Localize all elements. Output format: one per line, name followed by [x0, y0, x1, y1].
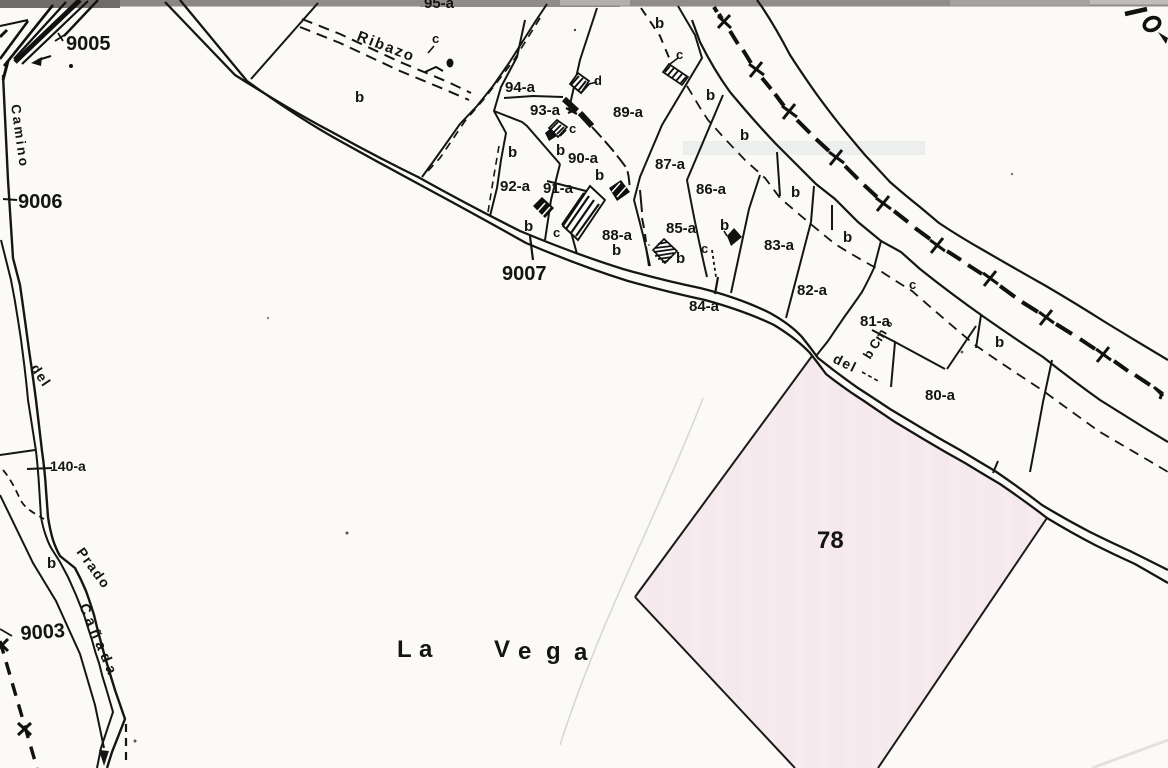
- svg-text:g: g: [546, 638, 561, 665]
- svg-text:95-a: 95-a: [424, 0, 455, 12]
- svg-text:93-a: 93-a: [530, 102, 561, 119]
- svg-text:9006: 9006: [18, 191, 63, 213]
- svg-text:9007: 9007: [502, 263, 547, 285]
- svg-text:b: b: [508, 144, 517, 161]
- svg-text:b: b: [706, 87, 715, 104]
- svg-text:c: c: [701, 241, 708, 256]
- svg-text:c: c: [569, 121, 576, 136]
- svg-text:90-a: 90-a: [568, 150, 599, 167]
- svg-text:b: b: [524, 218, 533, 235]
- svg-text:b: b: [556, 142, 565, 159]
- svg-text:9005: 9005: [66, 33, 111, 55]
- svg-text:89-a: 89-a: [613, 104, 644, 121]
- svg-text:b: b: [47, 555, 56, 572]
- svg-text:a: a: [574, 639, 588, 666]
- svg-text:82-a: 82-a: [797, 282, 828, 299]
- svg-text:e: e: [518, 638, 531, 665]
- svg-text:9003: 9003: [20, 620, 66, 645]
- svg-text:87-a: 87-a: [655, 156, 686, 173]
- svg-text:c: c: [909, 277, 916, 292]
- svg-text:b: b: [676, 250, 685, 267]
- svg-text:L: L: [397, 636, 412, 663]
- svg-text:c: c: [676, 47, 683, 62]
- svg-text:b: b: [655, 15, 664, 32]
- svg-text:a: a: [419, 636, 433, 663]
- svg-text:c: c: [432, 31, 439, 46]
- svg-text:b: b: [791, 184, 800, 201]
- svg-text:140-a: 140-a: [50, 458, 86, 474]
- svg-text:84-a: 84-a: [689, 298, 720, 315]
- svg-text:b: b: [720, 217, 729, 234]
- svg-text:V: V: [494, 636, 510, 663]
- svg-text:91-a: 91-a: [543, 180, 574, 197]
- svg-text:b: b: [995, 334, 1004, 351]
- svg-text:92-a: 92-a: [500, 178, 531, 195]
- svg-text:83-a: 83-a: [764, 237, 795, 254]
- svg-text:b: b: [843, 229, 852, 246]
- svg-text:b: b: [612, 242, 621, 259]
- svg-text:94-a: 94-a: [505, 79, 536, 96]
- svg-text:d: d: [594, 73, 602, 88]
- svg-text:b: b: [740, 127, 749, 144]
- svg-text:b: b: [355, 89, 364, 106]
- svg-text:80-a: 80-a: [925, 387, 956, 404]
- svg-text:78: 78: [817, 527, 844, 554]
- svg-text:86-a: 86-a: [696, 181, 727, 198]
- svg-text:85-a: 85-a: [666, 220, 697, 237]
- svg-text:b: b: [595, 167, 604, 184]
- svg-text:c: c: [553, 225, 560, 240]
